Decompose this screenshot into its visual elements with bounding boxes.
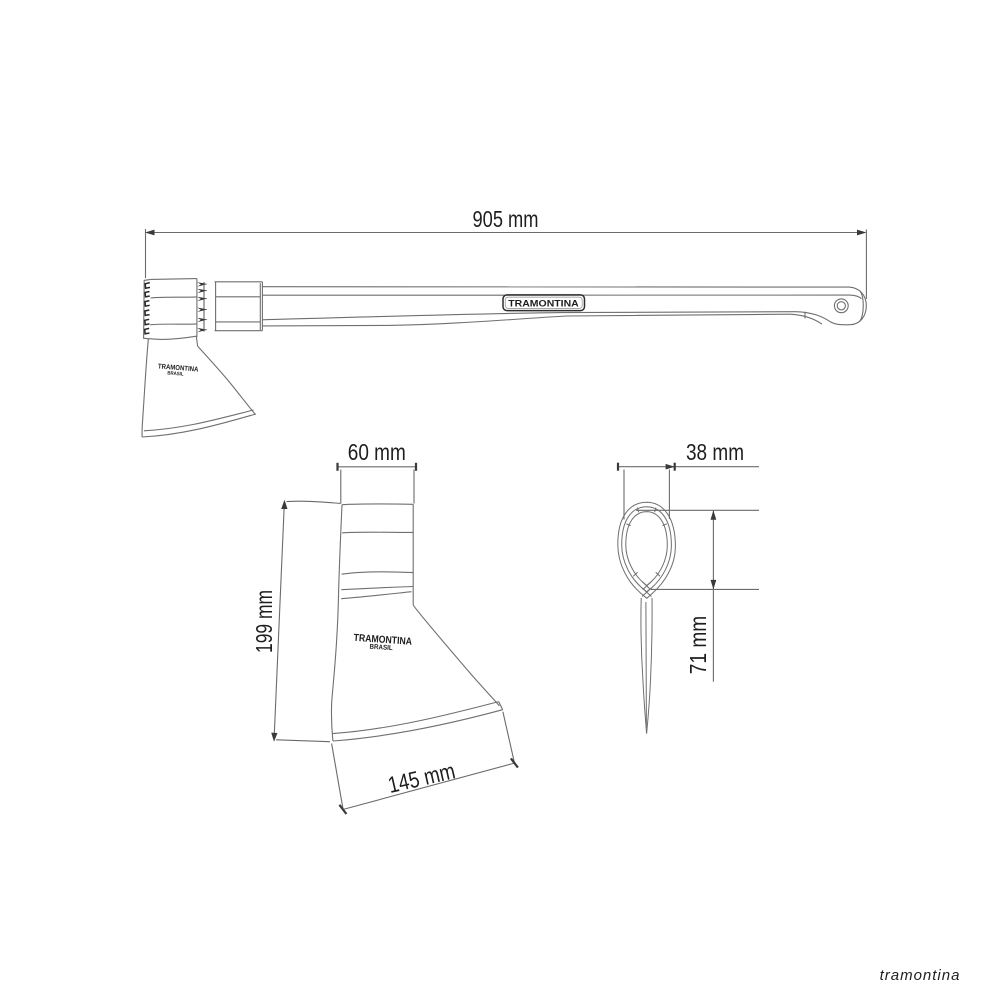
svg-text:38 mm: 38 mm <box>686 439 744 465</box>
svg-text:TRAMONTINA: TRAMONTINA <box>508 299 579 310</box>
svg-text:BRASIL: BRASIL <box>167 370 184 377</box>
svg-text:199 mm: 199 mm <box>251 590 277 653</box>
svg-text:60 mm: 60 mm <box>348 439 406 465</box>
svg-text:71 mm: 71 mm <box>685 616 711 675</box>
svg-text:tramontina: tramontina <box>880 967 961 984</box>
svg-text:905 mm: 905 mm <box>473 206 539 232</box>
